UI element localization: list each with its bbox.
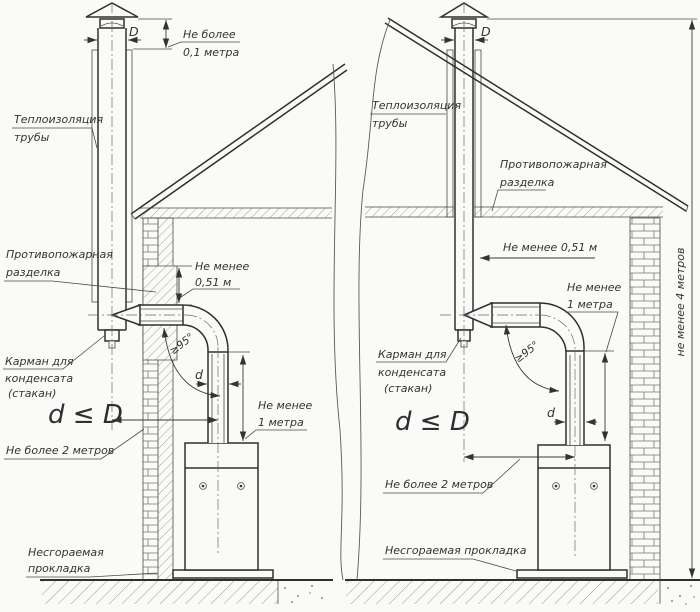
label-left-drop-line1: Не менее [258, 399, 313, 412]
chimney-installation-drawing: Не более 0,1 метра D Теплоизоляция трубы… [0, 0, 700, 612]
label-left-pad-line1: Несгораемая [28, 546, 104, 559]
label-left-insulation-line1: Теплоизоляция [14, 113, 103, 126]
label-right-angle: ≥95° [512, 339, 541, 365]
label-left-gap-line2: 0,51 м [195, 276, 231, 289]
left-ground-hatch [42, 581, 278, 604]
label-right-insulation-line2: трубы [372, 117, 408, 130]
label-left-pocket-line1: Карман для [5, 355, 74, 368]
left-break-line [333, 64, 343, 580]
right-ground-hatch [346, 581, 658, 604]
label-right-run-max: Не более 2 метров [385, 478, 493, 491]
right-wall-brick [630, 218, 660, 580]
label-left-pocket-line2: конденсата [5, 372, 73, 385]
label-right-firecut-line1: Противопожарная [500, 158, 607, 171]
right-boiler-body [538, 445, 610, 570]
label-left-pocket-line3: (стакан) [8, 387, 56, 400]
right-ground-speckle [667, 585, 695, 605]
label-right-pad: Несгораемая прокладка [385, 544, 527, 557]
label-left-run-max: Не более 2 метров [6, 444, 114, 457]
left-boiler-body [185, 443, 258, 570]
label-right-firecut-line2: разделка [499, 176, 555, 189]
label-right-diameter-d: d [547, 405, 555, 420]
left-roof-outer [131, 64, 345, 214]
left-ground-speckle [284, 585, 323, 603]
label-left-insulation-line2: трубы [14, 131, 50, 144]
label-left-pad-line2: прокладка [28, 562, 91, 575]
label-right-drop-line2: 1 метра [567, 298, 613, 311]
right-ceiling [365, 207, 663, 217]
label-right-gap: Не менее 0,51 м [503, 241, 597, 254]
left-boiler [173, 443, 273, 578]
label-left-firecut-line1: Противопожарная [6, 248, 113, 261]
label-left-formula: d ≤ D [48, 400, 123, 430]
drawing-canvas: Не более 0,1 метра D Теплоизоляция трубы… [0, 0, 700, 612]
right-insulation-shell [447, 50, 453, 217]
label-left-top-dim-line1: Не более [183, 28, 236, 41]
label-right-height-min: не менее 4 метров [674, 248, 687, 357]
left-ceiling [140, 208, 332, 218]
label-left-diameter-D: D [129, 24, 139, 39]
left-roof-inner [135, 70, 347, 219]
label-right-formula: d ≤ D [395, 407, 470, 437]
label-left-gap-line1: Не менее [195, 260, 250, 273]
left-insulation-shell [92, 50, 98, 302]
label-left-diameter-d: d [195, 367, 203, 382]
label-right-diameter-D: D [481, 24, 491, 39]
label-right-pocket-line2: конденсата [378, 366, 446, 379]
right-fireproof-pad [517, 570, 627, 578]
label-right-pocket-line3: (стакан) [384, 382, 432, 395]
right-boiler [517, 445, 627, 578]
label-right-pocket-line1: Карман для [378, 348, 447, 361]
left-fireproof-pad [173, 570, 273, 578]
label-right-drop-line1: Не менее [567, 281, 622, 294]
label-left-firecut-line2: разделка [5, 266, 61, 279]
label-left-drop-line2: 1 метра [258, 416, 304, 429]
label-left-top-dim-line2: 0,1 метра [183, 46, 239, 59]
label-right-insulation-line1: Теплоизоляция [372, 99, 461, 112]
left-insulation-shell [126, 50, 132, 302]
